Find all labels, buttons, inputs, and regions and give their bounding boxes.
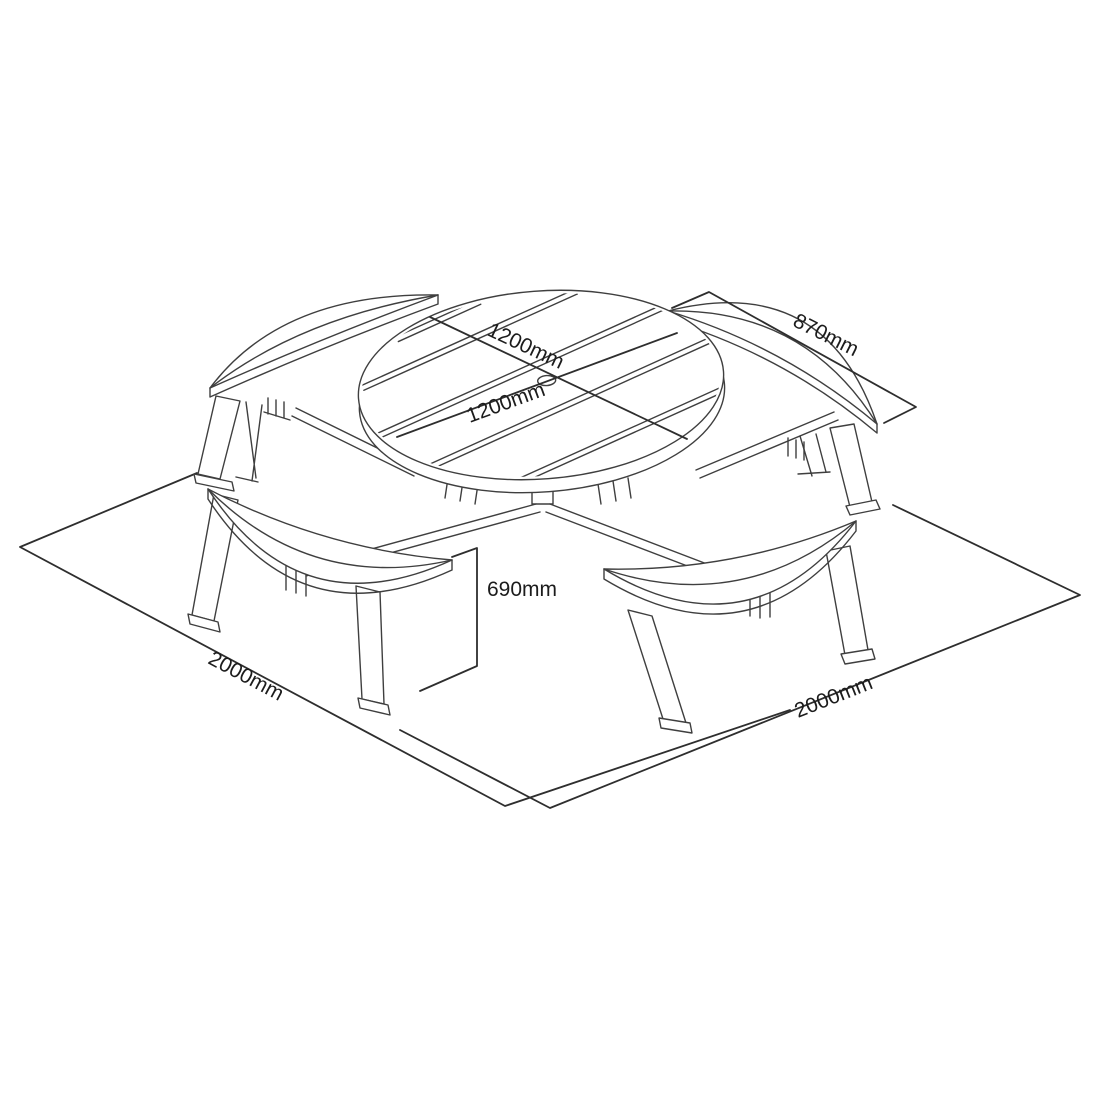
picnic-table-dimension-diagram: 1200mm 1200mm 690mm 870mm 2000mm 2000mm	[0, 0, 1100, 1100]
bench-sw-leg-right	[356, 586, 384, 704]
dim-label-footprint-left: 2000mm	[205, 647, 288, 706]
height-dimension: 690mm	[420, 548, 557, 691]
bench-se-leg-left	[628, 610, 686, 723]
bench-south-west	[188, 489, 452, 715]
bench-se-seat	[604, 521, 856, 604]
bench-nw-bracket	[264, 398, 290, 420]
bench-sw-seat	[208, 489, 452, 583]
bench-nw-leg-right	[236, 402, 262, 482]
footprint-outline	[20, 473, 1080, 808]
bench-se-leg-right	[826, 546, 868, 655]
footprint-edge-right	[400, 505, 1080, 808]
diagram-canvas: 1200mm 1200mm 690mm 870mm 2000mm 2000mm	[0, 0, 1100, 1100]
bench-se-foot-left	[659, 718, 692, 733]
bench-nw-leg-left	[198, 396, 240, 479]
bench-ne-leg-right	[830, 424, 872, 507]
dim-label-height: 690mm	[487, 578, 557, 601]
footprint-labels: 2000mm 2000mm	[205, 647, 876, 723]
bench-ne-leg-left	[798, 434, 830, 476]
footprint-edge-left	[20, 473, 790, 806]
dim-label-footprint-right: 2000mm	[791, 671, 875, 722]
bench-ne-support-rail	[696, 412, 838, 478]
